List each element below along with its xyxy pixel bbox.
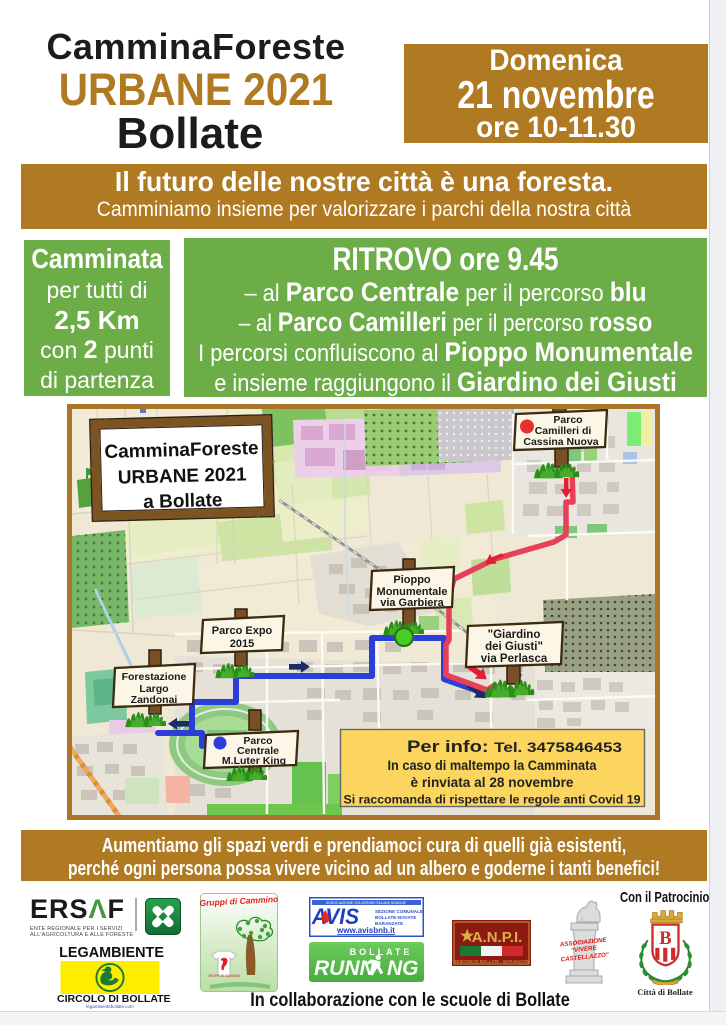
svg-text:"Giardino: "Giardino	[488, 629, 541, 641]
svg-text:SEZIONE COMUNALE: SEZIONE COMUNALE	[375, 909, 423, 914]
svg-text:URBANE 2021: URBANE 2021	[118, 464, 248, 488]
svg-text:Cassina Nuova: Cassina Nuova	[523, 436, 598, 448]
svg-text:M.Luter King: M.Luter King	[222, 755, 286, 767]
svg-text:Parco Expo: Parco Expo	[212, 625, 273, 637]
svg-text:Per info: Tel. 3475846453: Per info: Tel. 3475846453	[407, 738, 622, 756]
svg-text:a Bollate: a Bollate	[143, 490, 223, 513]
svg-text:NG: NG	[387, 957, 419, 980]
svg-text:via Garbiera: via Garbiera	[380, 597, 444, 609]
svg-text:2015: 2015	[230, 638, 254, 650]
svg-text:www.avisbnb.it: www.avisbnb.it	[336, 926, 395, 935]
svg-text:Pioppo: Pioppo	[393, 574, 431, 586]
svg-text:SEZIONE DI BOLLATE - BARANZATE: SEZIONE DI BOLLATE - BARANZATE	[454, 959, 530, 964]
svg-text:BOLLATE: BOLLATE	[350, 947, 413, 957]
svg-text:RUNN: RUNN	[314, 957, 375, 980]
svg-text:In caso di maltempo la Cammina: In caso di maltempo la Camminata	[388, 758, 597, 773]
svg-text:CamminaForeste: CamminaForeste	[104, 438, 259, 463]
svg-text:A.N.P.I.: A.N.P.I.	[472, 929, 523, 946]
svg-text:GRUPPI DI CAMMINO: GRUPPI DI CAMMINO	[208, 974, 241, 978]
svg-text:è rinviata al 28 novembre: è rinviata al 28 novembre	[411, 775, 574, 790]
svg-text:Zandonai: Zandonai	[131, 694, 178, 706]
svg-text:Si raccomanda di rispettare le: Si raccomanda di rispettare le regole an…	[344, 793, 641, 807]
svg-text:B: B	[659, 928, 671, 949]
svg-text:via Perlasca: via Perlasca	[481, 653, 548, 665]
svg-text:dei Giusti": dei Giusti"	[485, 641, 543, 653]
svg-text:BOLLATE-NOVATE: BOLLATE-NOVATE	[375, 915, 416, 920]
svg-text:Forestazione: Forestazione	[122, 671, 187, 683]
